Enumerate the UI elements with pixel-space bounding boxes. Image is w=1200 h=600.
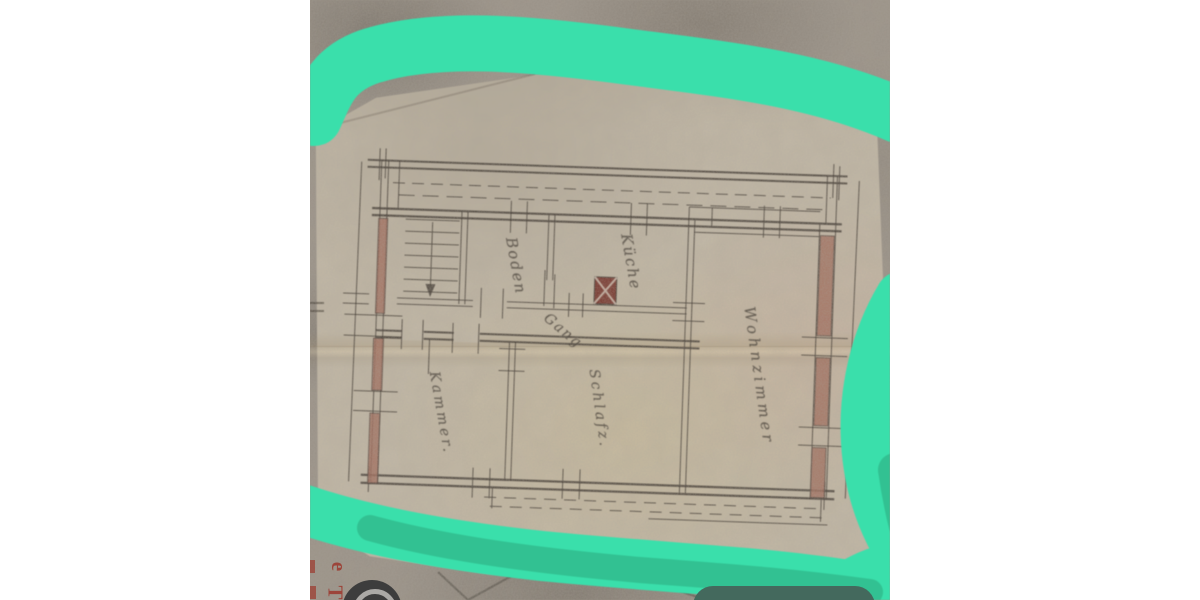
staircase	[403, 219, 459, 293]
stove-icon	[594, 277, 617, 305]
window-ticks	[338, 191, 852, 510]
watermark-circle-ring	[353, 589, 397, 600]
margin-letter-e: e	[326, 561, 351, 571]
stair-arrow	[425, 284, 435, 297]
margin-letter-fragment-1	[310, 560, 315, 573]
floorplan-photo: Boden Küche Gang Wohnzimmer Schlafz. Kam…	[310, 0, 890, 600]
floorplan-drawing	[310, 0, 890, 600]
margin-letter-fragment-2	[310, 586, 316, 599]
bottom-pill-button[interactable]	[693, 586, 875, 600]
plan-group	[336, 147, 860, 526]
screenshot-canvas: Boden Küche Gang Wohnzimmer Schlafz. Kam…	[0, 0, 1200, 600]
